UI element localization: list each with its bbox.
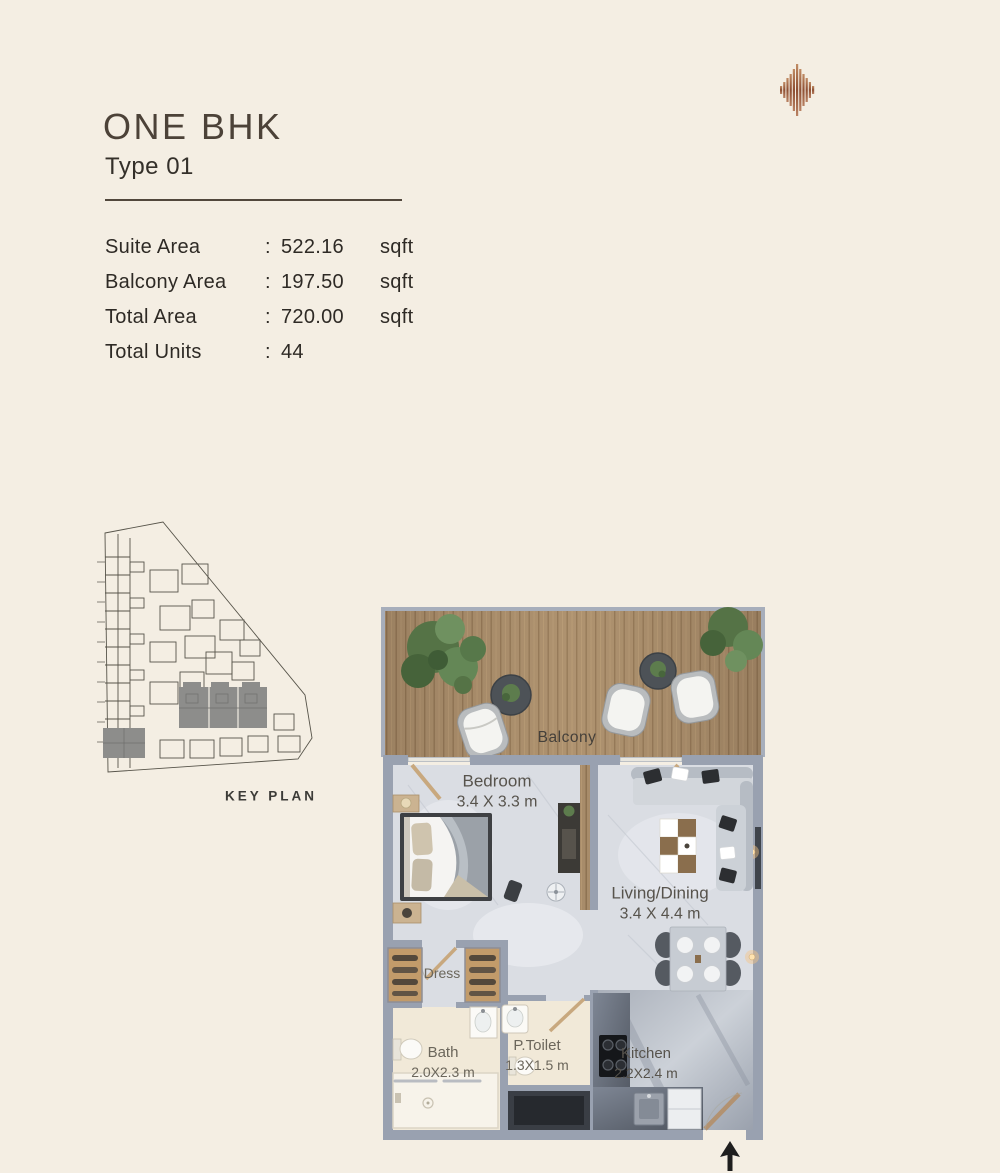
ceiling-fan-icon [547, 883, 565, 901]
room-label-bedroom: Bedroom 3.4 X 3.3 m [457, 771, 538, 814]
nightstand [393, 903, 421, 923]
wall-sconce-icon [745, 950, 759, 964]
stats-row-suite: Suite Area : 522.16 sqft [105, 230, 413, 265]
service-shaft [508, 1091, 590, 1130]
stat-colon: : [265, 236, 281, 259]
stat-colon: : [265, 271, 281, 294]
room-dims: 1.3X1.5 m [505, 1056, 569, 1074]
room-dims: 2.2X2.4 m [614, 1064, 678, 1082]
brand-waveform-logo-icon [779, 61, 817, 119]
stats-row-balcony: Balcony Area : 197.50 sqft [105, 265, 413, 300]
floor-plan: Balcony Bedroom 3.4 X 3.3 m Living/Dinin… [378, 605, 768, 1173]
room-name: Bedroom [457, 771, 538, 793]
stat-label: Total Area [105, 306, 265, 329]
key-plan: KEY PLAN [90, 512, 330, 812]
stat-value: 44 [281, 341, 380, 364]
page-title: ONE BHK [103, 106, 283, 148]
stat-unit: sqft [380, 236, 413, 259]
room-dims: 2.0X2.3 m [411, 1063, 475, 1081]
room-name: Kitchen [614, 1044, 678, 1064]
stat-colon: : [265, 306, 281, 329]
room-label-living-dining: Living/Dining 3.4 X 4.4 m [611, 883, 708, 926]
stats-row-total-area: Total Area : 720.00 sqft [105, 300, 413, 335]
bed [400, 813, 492, 901]
bathroom-sink [470, 1007, 497, 1038]
room-name: P.Toilet [505, 1036, 569, 1056]
room-label-dress: Dress [424, 964, 461, 982]
stat-colon: : [265, 341, 281, 364]
room-name: Living/Dining [611, 883, 708, 905]
stat-value: 720.00 [281, 306, 380, 329]
stat-unit: sqft [380, 271, 413, 294]
fridge-icon [668, 1089, 701, 1129]
balcony-side-table [640, 653, 676, 689]
room-label-kitchen: Kitchen 2.2X2.4 m [614, 1044, 678, 1082]
floorplan-brochure-page: ONE BHK Type 01 Suite Area : 522.16 sqft… [0, 0, 1000, 1173]
room-name: Dress [424, 965, 461, 981]
window-strip [755, 827, 761, 889]
page-subtitle: Type 01 [105, 153, 194, 181]
bathtub [393, 1073, 498, 1128]
room-name: Balcony [538, 729, 597, 746]
floor-plan-drawing [378, 605, 768, 1173]
room-dims: 3.4 X 4.4 m [611, 905, 708, 926]
lounge-chair [669, 669, 721, 726]
north-arrow-icon [720, 1141, 740, 1171]
wardrobe [388, 948, 422, 1002]
key-plan-label: KEY PLAN [225, 789, 317, 804]
stat-label: Total Units [105, 341, 265, 364]
tv-console [558, 803, 580, 873]
room-label-balcony: Balcony [538, 728, 597, 748]
room-dims: 3.4 X 3.3 m [457, 793, 538, 814]
title-divider [105, 199, 402, 201]
kitchen-sink-icon [634, 1093, 664, 1125]
nightstand [393, 795, 419, 812]
room-label-bath: Bath 2.0X2.3 m [411, 1043, 475, 1081]
area-stats-table: Suite Area : 522.16 sqft Balcony Area : … [105, 230, 413, 370]
stat-label: Balcony Area [105, 271, 265, 294]
key-plan-drawing [90, 512, 330, 812]
stat-unit: sqft [380, 306, 413, 329]
wardrobe [465, 948, 500, 1002]
stat-value: 197.50 [281, 271, 380, 294]
room-name: Bath [411, 1043, 475, 1063]
stats-row-total-units: Total Units : 44 [105, 335, 413, 370]
room-label-ptoilet: P.Toilet 1.3X1.5 m [505, 1036, 569, 1074]
coffee-table [660, 819, 696, 873]
stat-value: 522.16 [281, 236, 380, 259]
stat-label: Suite Area [105, 236, 265, 259]
powder-room-sink [502, 1005, 528, 1033]
